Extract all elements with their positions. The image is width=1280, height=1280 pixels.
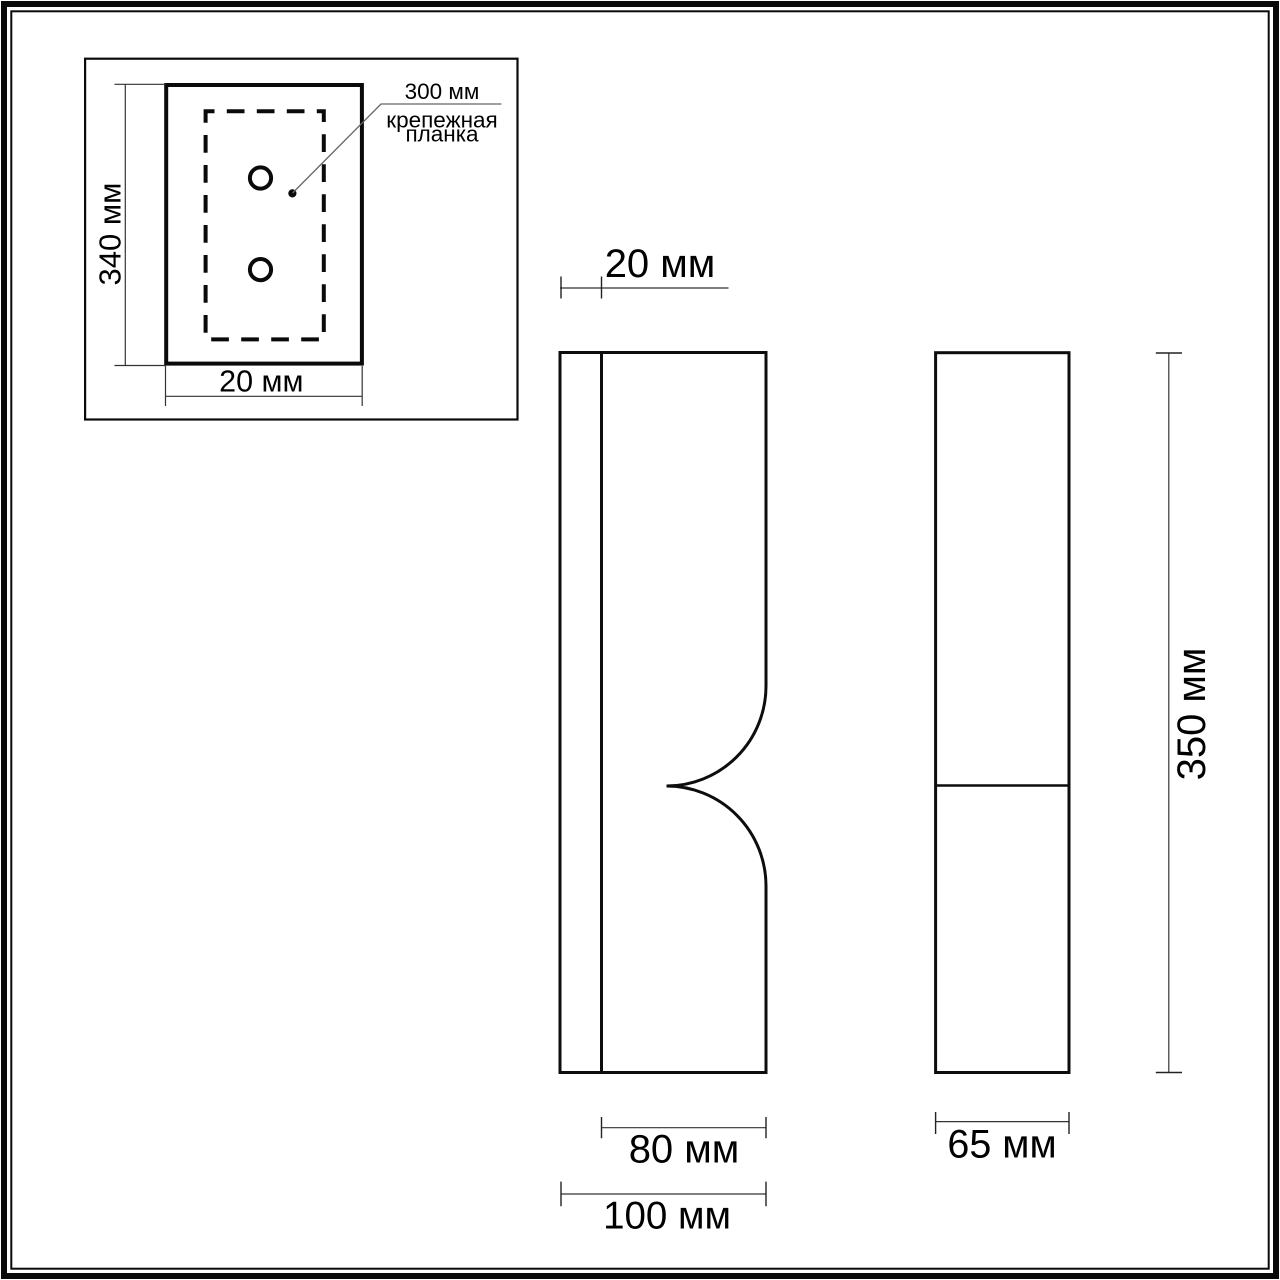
svg-text:планка: планка — [405, 121, 479, 146]
svg-text:340 мм: 340 мм — [92, 183, 127, 286]
svg-text:350 мм: 350 мм — [1170, 648, 1214, 781]
svg-text:80 мм: 80 мм — [629, 1128, 740, 1172]
svg-text:20 мм: 20 мм — [605, 242, 716, 286]
svg-text:300 мм: 300 мм — [405, 79, 480, 104]
svg-text:100 мм: 100 мм — [603, 1194, 731, 1237]
svg-text:65 мм: 65 мм — [947, 1123, 1056, 1167]
svg-text:20 мм: 20 мм — [219, 365, 303, 399]
